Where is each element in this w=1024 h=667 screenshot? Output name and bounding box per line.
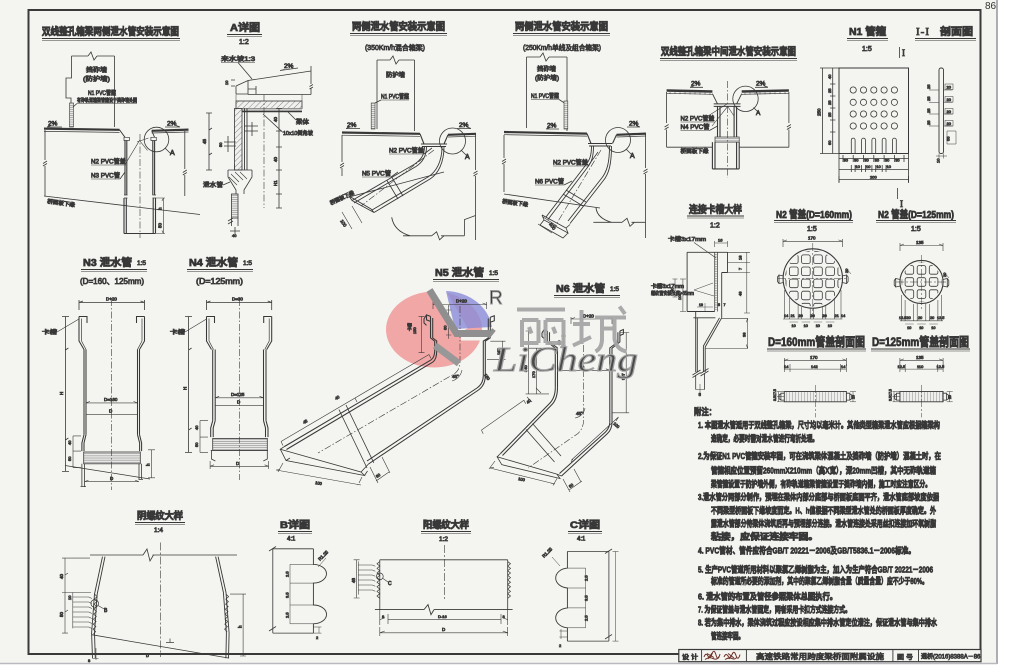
- svg-text:2.5: 2.5: [285, 612, 290, 618]
- svg-text:10: 10: [931, 326, 935, 330]
- svg-text:20: 20: [811, 314, 815, 318]
- svg-text:LiCheng: LiCheng: [493, 340, 638, 379]
- svg-text:40: 40: [59, 573, 64, 579]
- svg-text:10: 10: [804, 324, 808, 328]
- svg-text:45°: 45°: [576, 411, 583, 416]
- svg-text:8. 若为集中排水，梁体浇筑过程应按设相应集中排水管定位灌注: 8. 若为集中排水，梁体浇筑过程应按设相应集中排水管定位灌注，保证泄水管与集中排…: [698, 617, 937, 628]
- svg-text:2.为保证N1 PVC管箍安装牢固，可在浇筑梁体混凝土及挡砟: 2.为保证N1 PVC管箍安装牢固，可在浇筑梁体混凝土及挡砟墙（防护墙）混凝土时…: [698, 450, 941, 461]
- svg-text:3.5: 3.5: [889, 396, 893, 401]
- svg-text:30: 30: [864, 158, 869, 163]
- svg-text:40: 40: [194, 425, 199, 430]
- svg-text:附注：: 附注：: [694, 406, 716, 417]
- svg-text:20: 20: [845, 269, 849, 273]
- svg-text:1:5: 1:5: [862, 46, 872, 53]
- svg-text:250: 250: [817, 108, 822, 116]
- svg-text:60: 60: [827, 140, 832, 145]
- svg-text:露泄水管部分待梁体浇筑后再与预埋部分连接。泄水管连接处采用丝: 露泄水管部分待梁体浇筑后再与预埋部分连接。泄水管连接处采用丝扣连接加环氧树脂: [711, 518, 936, 529]
- svg-text:1:4: 1:4: [154, 527, 163, 534]
- svg-text:17.5: 17.5: [889, 389, 893, 396]
- svg-text:1:5: 1:5: [137, 260, 146, 267]
- svg-text:20: 20: [930, 316, 934, 320]
- svg-text:I: I: [900, 199, 903, 209]
- svg-text:3.5: 3.5: [285, 592, 290, 598]
- svg-text:剖面图: 剖面图: [940, 25, 973, 38]
- svg-text:N1 PVC管箍: N1 PVC管箍: [381, 93, 409, 101]
- svg-text:N6 PVC管: N6 PVC管: [535, 178, 564, 186]
- svg-text:(350Km/h混合箱梁): (350Km/h混合箱梁): [365, 43, 425, 52]
- svg-text:(250Km/h单线及组合箱梁): (250Km/h单线及组合箱梁): [523, 43, 601, 52]
- svg-text:A: A: [170, 150, 175, 157]
- svg-text:不同梁型桥面板下缘坡度而定。H、h值根据不同梁型泄水管处的桥: 不同梁型桥面板下缘坡度而定。H、h值根据不同梁型泄水管处的桥面板厚度确定。外: [711, 505, 936, 516]
- svg-text:1:5: 1:5: [489, 270, 498, 277]
- svg-text:梁管箍设置于防护墙外侧，有砟轨道箱梁管箍设置于挡砟墙内侧，施: 梁管箍设置于防护墙外侧，有砟轨道箱梁管箍设置于挡砟墙内侧，施工时应注意区分。: [710, 478, 931, 489]
- svg-text:48: 48: [738, 291, 743, 296]
- svg-text:10x10倒角坡: 10x10倒角坡: [283, 129, 313, 137]
- svg-text:卡槽3x17mm: 卡槽3x17mm: [668, 235, 706, 243]
- svg-text:19: 19: [699, 303, 703, 307]
- svg-text:N2 PVC管盖: N2 PVC管盖: [553, 159, 588, 167]
- svg-text:10: 10: [887, 164, 892, 169]
- svg-text:40: 40: [273, 116, 278, 122]
- svg-text:B详图: B详图: [280, 519, 310, 531]
- svg-text:30: 30: [885, 158, 890, 163]
- svg-text:(防护墙): (防护墙): [535, 74, 559, 82]
- svg-text:142: 142: [811, 364, 818, 369]
- svg-text:170: 170: [808, 236, 816, 241]
- svg-text:7. 为保证管盖与泄水管固定，两者采用卡扣方式连接方式。: 7. 为保证管盖与泄水管固定，两者采用卡扣方式连接方式。: [698, 604, 851, 615]
- svg-text:4:1: 4:1: [287, 537, 296, 543]
- svg-text:25: 25: [926, 96, 931, 101]
- svg-text:25: 25: [827, 100, 832, 105]
- svg-text:连接卡槽大样: 连接卡槽大样: [689, 203, 742, 216]
- svg-text:14: 14: [784, 364, 789, 369]
- svg-text:A: A: [630, 153, 635, 160]
- svg-text:20: 20: [947, 121, 952, 126]
- svg-text:阴螺纹大样: 阴螺纹大样: [137, 510, 183, 522]
- svg-text:7: 7: [724, 303, 726, 307]
- svg-text:20: 20: [823, 314, 827, 318]
- svg-text:管连接牢固。: 管连接牢固。: [711, 630, 744, 641]
- svg-text:挡砟墙: 挡砟墙: [537, 65, 556, 73]
- svg-text:N1 管箍: N1 管箍: [849, 25, 886, 38]
- svg-text:10: 10: [919, 326, 923, 330]
- svg-text:25: 25: [926, 84, 931, 89]
- svg-text:1:5: 1:5: [610, 286, 619, 293]
- svg-text:20: 20: [918, 316, 922, 320]
- svg-text:1:5: 1:5: [807, 226, 817, 233]
- svg-text:40: 40: [273, 156, 278, 162]
- svg-text:D=125mm管盖剖面图: D=125mm管盖剖面图: [872, 334, 969, 349]
- svg-text:55: 55: [946, 136, 951, 141]
- svg-text:50: 50: [158, 222, 163, 228]
- svg-text:135: 135: [916, 355, 924, 360]
- svg-text:150: 150: [412, 327, 417, 334]
- svg-text:10: 10: [907, 326, 911, 330]
- svg-text:10: 10: [828, 324, 832, 328]
- svg-text:50: 50: [218, 142, 223, 147]
- svg-text:1:2: 1:2: [710, 223, 720, 230]
- svg-text:20: 20: [947, 85, 952, 90]
- svg-text:D=30: D=30: [232, 297, 243, 302]
- svg-text:17.5: 17.5: [773, 389, 777, 396]
- svg-text:12.5: 12.5: [937, 364, 946, 369]
- svg-text:21: 21: [791, 314, 795, 318]
- svg-text:20: 20: [799, 314, 803, 318]
- svg-text:30: 30: [844, 158, 849, 163]
- svg-text:20: 20: [947, 97, 952, 102]
- svg-text:R: R: [489, 288, 503, 309]
- svg-text:12.5: 12.5: [899, 316, 906, 320]
- svg-text:N4 泄水管: N4 泄水管: [189, 256, 238, 269]
- svg-text:30: 30: [875, 158, 880, 163]
- svg-text:135: 135: [916, 240, 924, 245]
- svg-text:2.5: 2.5: [584, 575, 589, 581]
- svg-text:86: 86: [985, 1, 997, 12]
- svg-text:标准的管道所必要的添加剂，其中的聚氯乙烯树脂含量（质量含量）: 标准的管道所必要的添加剂，其中的聚氯乙烯树脂含量（质量含量）应不少于80%。: [710, 575, 928, 586]
- svg-text:50: 50: [67, 456, 72, 461]
- svg-text:两侧泄水管安装示意图: 两侧泄水管安装示意图: [352, 20, 445, 33]
- svg-text:20: 20: [852, 395, 856, 399]
- svg-text:20: 20: [907, 316, 911, 320]
- svg-text:卡槽: 卡槽: [42, 328, 58, 336]
- svg-text:N2 PVC管盖: N2 PVC管盖: [681, 115, 715, 123]
- svg-text:25: 25: [926, 108, 931, 113]
- svg-text:45: 45: [202, 138, 207, 144]
- svg-text:H1: H1: [273, 180, 278, 186]
- svg-text:38: 38: [742, 332, 747, 337]
- svg-text:103: 103: [677, 293, 682, 300]
- svg-text:25: 25: [827, 88, 832, 93]
- svg-text:梁体: 梁体: [296, 118, 309, 126]
- svg-text:2%: 2%: [167, 121, 177, 128]
- svg-text:N6 泄水管: N6 泄水管: [556, 282, 605, 295]
- svg-text:图 号: 图 号: [897, 653, 914, 661]
- svg-text:N2 管盖(D=160mm): N2 管盖(D=160mm): [776, 208, 852, 221]
- svg-text:N5 PVC管: N5 PVC管: [362, 170, 391, 178]
- svg-text:2.5: 2.5: [584, 615, 589, 621]
- svg-text:来水坡1:3: 来水坡1:3: [221, 55, 256, 63]
- svg-text:2%: 2%: [756, 81, 766, 88]
- svg-text:N3 PVC管: N3 PVC管: [91, 172, 120, 180]
- svg-text:25: 25: [827, 112, 832, 117]
- svg-text:1:2: 1:2: [439, 536, 448, 543]
- svg-text:5. 生产PVC管道所用材料以聚氯乙烯树脂为主，加入为生产符: 5. 生产PVC管道所用材料以聚氯乙烯树脂为主，加入为生产符合GB/T 2022…: [698, 564, 933, 575]
- svg-text:10: 10: [67, 595, 72, 600]
- svg-text:3.5: 3.5: [584, 595, 589, 601]
- svg-text:D+20: D+20: [456, 299, 467, 304]
- svg-text:10: 10: [224, 80, 229, 85]
- svg-text:4:1: 4:1: [577, 537, 586, 543]
- svg-text:粘接，应保证连接牢固。: 粘接，应保证连接牢固。: [710, 531, 818, 542]
- svg-text:10: 10: [876, 164, 881, 169]
- svg-text:A详图: A详图: [230, 21, 260, 34]
- svg-text:50: 50: [59, 611, 64, 617]
- svg-text:1:5: 1:5: [911, 226, 921, 233]
- svg-text:卡槽: 卡槽: [170, 328, 186, 336]
- svg-text:20: 20: [943, 273, 947, 277]
- svg-text:D=160: D=160: [104, 397, 118, 402]
- svg-text:3.5: 3.5: [773, 396, 777, 401]
- svg-text:阳螺纹大样: 阳螺纹大样: [423, 519, 469, 531]
- svg-text:12.5: 12.5: [898, 364, 907, 369]
- svg-text:A: A: [756, 110, 761, 117]
- svg-text:40: 40: [827, 74, 832, 79]
- svg-text:管箍相应位置预留260mmX210mm（高X宽），深20mm: 管箍相应位置预留260mmX210mm（高X宽），深20mm凹槽，其中无砟轨道箱: [711, 465, 936, 476]
- svg-text:防护墙: 防护墙: [386, 71, 405, 79]
- svg-text:30: 30: [854, 158, 859, 163]
- svg-text:N1 PVC管箍: N1 PVC管箍: [531, 92, 559, 100]
- svg-text:4. PVC管材、管件应符合GB/T 20221－2006及: 4. PVC管材、管件应符合GB/T 20221－2006及GB/T5836.1…: [698, 545, 915, 556]
- svg-text:3.泄水管分两部分制作，预埋在梁体内部分底部与桥面板底面平齐: 3.泄水管分两部分制作，预埋在梁体内部分底部与桥面板底面平齐，泄水管底部坡度依据: [698, 491, 939, 502]
- svg-text:25: 25: [926, 120, 931, 125]
- svg-text:5: 5: [718, 303, 720, 307]
- svg-text:(D=160、125mm): (D=160、125mm): [80, 277, 144, 286]
- svg-text:双线整孔箱梁两侧泄水管安装示意图: 双线整孔箱梁两侧泄水管安装示意图: [42, 25, 179, 38]
- svg-text:N2 PVC管盖: N2 PVC管盖: [389, 147, 424, 155]
- svg-text:10: 10: [816, 324, 820, 328]
- svg-text:两侧泄水管安装示意图: 两侧泄水管安装示意图: [515, 20, 608, 33]
- svg-text:110: 110: [917, 364, 924, 369]
- svg-text:1:2: 1:2: [239, 39, 249, 46]
- svg-text:10: 10: [856, 164, 861, 169]
- svg-text:1:5: 1:5: [243, 260, 252, 267]
- svg-text:18: 18: [738, 255, 743, 260]
- svg-text:N3 泄水管: N3 泄水管: [83, 256, 132, 269]
- svg-text:泄水管: 泄水管: [203, 181, 223, 189]
- svg-text:170: 170: [810, 355, 818, 360]
- svg-text:H: H: [183, 387, 188, 390]
- svg-text:10: 10: [792, 324, 796, 328]
- svg-text:21: 21: [835, 314, 839, 318]
- svg-text:12.5: 12.5: [937, 316, 944, 320]
- svg-text:40: 40: [670, 287, 675, 292]
- svg-text:N2 PVC管盖: N2 PVC管盖: [91, 158, 126, 166]
- svg-text:(防护墙): (防护墙): [83, 75, 110, 83]
- svg-text:(D=125mm): (D=125mm): [196, 277, 243, 286]
- svg-text:D-16: D-16: [438, 614, 447, 619]
- svg-text:40: 40: [67, 440, 72, 445]
- svg-text:10: 10: [936, 158, 941, 163]
- svg-text:造确定，必要时需对泄水管进行弯折处理。: 造确定，必要时需对泄水管进行弯折处理。: [711, 433, 818, 444]
- svg-text:H: H: [59, 392, 64, 395]
- svg-text:16: 16: [718, 238, 723, 243]
- svg-text:N1 PVC管箍: N1 PVC管箍: [88, 89, 116, 97]
- svg-text:40: 40: [232, 233, 237, 238]
- svg-text:30: 30: [895, 158, 900, 163]
- svg-text:1. 本图泄水管适用于双线整孔箱梁，尺寸均以毫米计。其他类型: 1. 本图泄水管适用于双线整孔箱梁，尺寸均以毫米计。其他类型箱梁泄水管应根据箱梁…: [698, 419, 940, 430]
- svg-text:通桥(2016)8388A－86: 通桥(2016)8388A－86: [921, 653, 981, 661]
- svg-text:50: 50: [194, 442, 199, 447]
- svg-text:D: D: [146, 653, 149, 658]
- svg-text:2%: 2%: [629, 121, 639, 128]
- svg-text:N2 管盖(D=125mm): N2 管盖(D=125mm): [878, 208, 954, 221]
- svg-text:D+20: D+20: [583, 314, 594, 319]
- svg-text:N4 PVC管: N4 PVC管: [681, 123, 710, 131]
- svg-text:10: 10: [866, 164, 871, 169]
- svg-text:14: 14: [784, 314, 788, 318]
- svg-text:I-I: I-I: [916, 26, 930, 38]
- svg-text:挡砟墙: 挡砟墙: [86, 66, 107, 74]
- svg-text:45°: 45°: [452, 374, 459, 379]
- svg-text:双线整孔箱梁中间泄水管安装示意图: 双线整孔箱梁中间泄水管安装示意图: [661, 45, 796, 58]
- svg-text:20: 20: [947, 109, 952, 114]
- svg-text:C详图: C详图: [570, 519, 600, 531]
- svg-text:D=125: D=125: [231, 392, 245, 397]
- svg-text:6. 泄水管的布置及管径参照梁体总图执行。: 6. 泄水管的布置及管径参照梁体总图执行。: [698, 591, 837, 602]
- svg-text:2%: 2%: [459, 122, 469, 129]
- svg-text:C: C: [388, 581, 392, 587]
- svg-text:设 计: 设 计: [682, 652, 699, 661]
- svg-text:有砟轨道箱梁管箍设于挡砟墙处图: 有砟轨道箱梁管箍设于挡砟墙处图: [77, 97, 137, 104]
- svg-text:14: 14: [841, 314, 845, 318]
- svg-text:48: 48: [351, 577, 356, 583]
- svg-text:20: 20: [948, 395, 952, 399]
- svg-text:桥面板下缘: 桥面板下缘: [681, 147, 709, 155]
- svg-text:I: I: [902, 48, 905, 58]
- svg-text:2.5: 2.5: [285, 571, 290, 577]
- svg-text:200: 200: [870, 175, 877, 180]
- svg-text:D=160mm管盖剖面图: D=160mm管盖剖面图: [768, 334, 865, 349]
- svg-text:A: A: [465, 154, 470, 161]
- svg-text:高速铁路常用跨度梁桥面附属设施: 高速铁路常用跨度梁桥面附属设施: [756, 651, 885, 661]
- svg-text:卡槽3x17mm: 卡槽3x17mm: [651, 283, 684, 290]
- svg-text:N5 泄水管: N5 泄水管: [435, 266, 484, 279]
- svg-text:14: 14: [841, 364, 846, 369]
- svg-text:60: 60: [443, 325, 448, 330]
